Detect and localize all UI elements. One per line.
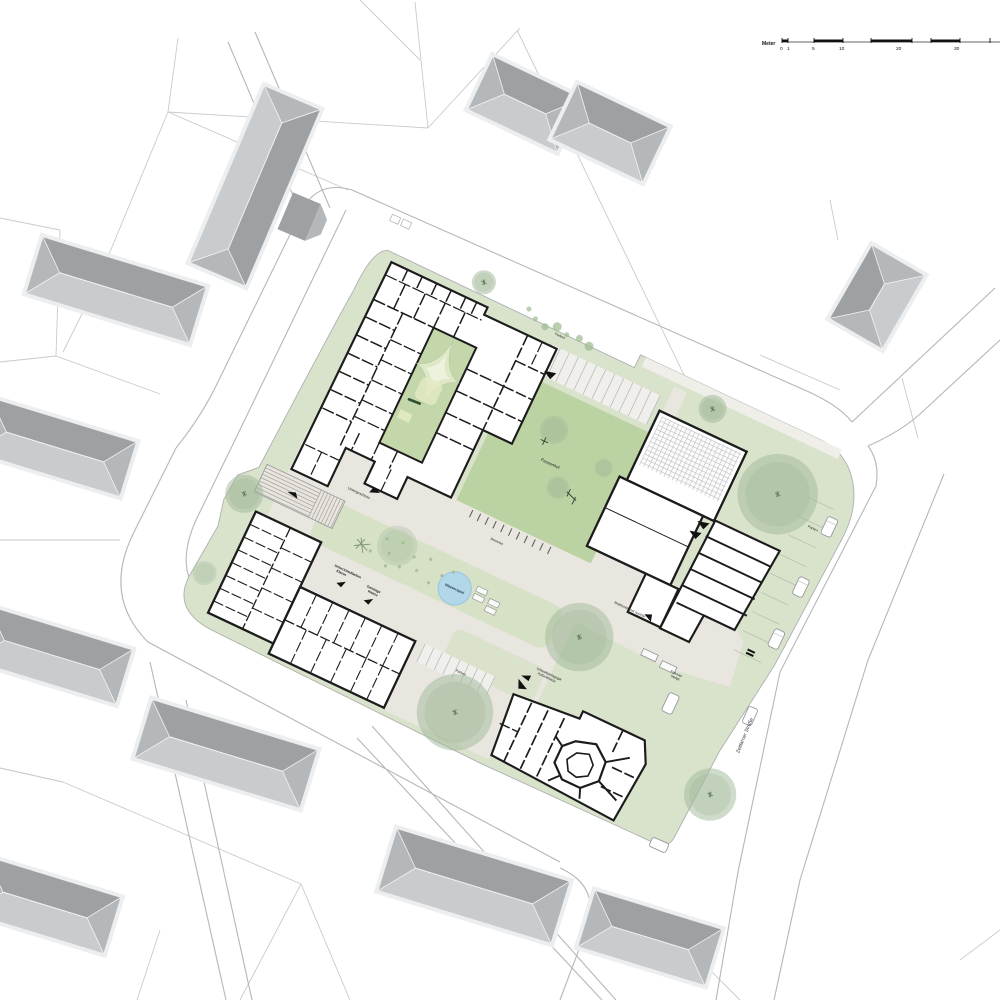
svg-text:Meter: Meter	[762, 41, 775, 47]
svg-text:30: 30	[954, 46, 960, 52]
svg-text:1: 1	[787, 46, 790, 52]
svg-text:5: 5	[812, 46, 815, 52]
svg-text:20: 20	[896, 46, 902, 52]
svg-text:0: 0	[780, 46, 783, 52]
svg-text:10: 10	[839, 46, 845, 52]
